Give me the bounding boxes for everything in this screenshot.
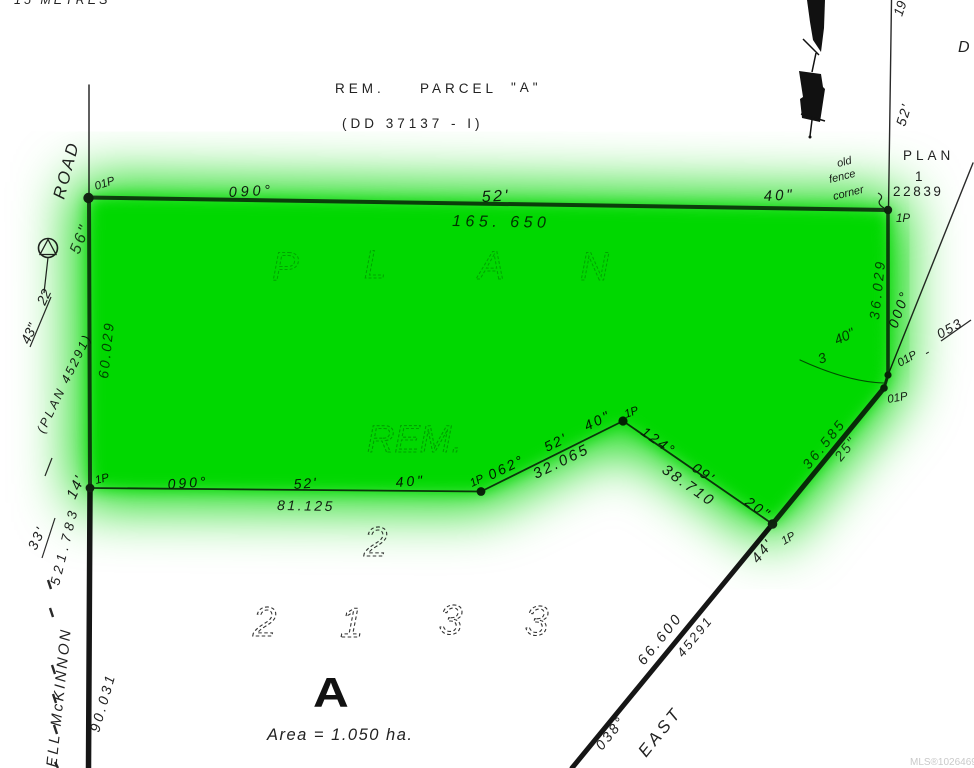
svg-text:PLAN: PLAN (903, 148, 954, 163)
svg-text:053: 053 (934, 315, 965, 341)
svg-text:43": 43" (17, 320, 41, 346)
svg-text:81.125: 81.125 (277, 497, 335, 514)
svg-text:1P: 1P (94, 472, 111, 487)
svg-text:038°: 038° (592, 713, 629, 753)
svg-text:1: 1 (915, 169, 923, 184)
svg-text:corner: corner (832, 183, 866, 203)
svg-text:-: - (921, 344, 933, 360)
svg-text:3: 3 (439, 596, 462, 643)
svg-text:1P: 1P (623, 405, 641, 421)
svg-text:BELL McKINNON: BELL McKINNON (42, 627, 75, 768)
svg-text:22: 22 (33, 286, 55, 308)
svg-text:01P: 01P (896, 349, 920, 370)
svg-text:090°: 090° (228, 183, 274, 201)
svg-text:165. 650: 165. 650 (452, 213, 551, 232)
svg-text:15 METRES: 15 METRES (14, 0, 110, 7)
svg-text:40": 40" (395, 472, 426, 490)
svg-text:521.783: 521.783 (47, 505, 81, 587)
svg-text:01P: 01P (93, 175, 116, 193)
svg-text:60.029: 60.029 (95, 320, 117, 379)
svg-text:52': 52' (293, 474, 318, 492)
svg-text:3: 3 (525, 597, 548, 644)
svg-text:2: 2 (252, 598, 276, 645)
svg-text:01P: 01P (886, 391, 909, 406)
svg-text:44': 44' (749, 536, 778, 567)
svg-text:ROAD: ROAD (50, 139, 84, 201)
svg-text:A: A (313, 669, 349, 717)
svg-text:P: P (272, 245, 299, 289)
svg-text:40": 40" (581, 407, 613, 434)
svg-text:3: 3 (816, 349, 829, 367)
svg-text:Area = 1.050 ha.: Area = 1.050 ha. (266, 726, 413, 744)
svg-text:40": 40" (832, 324, 858, 348)
svg-text:19: 19 (891, 0, 910, 18)
svg-text:14': 14' (63, 473, 89, 502)
svg-text:1P: 1P (468, 473, 486, 490)
svg-text:1P: 1P (780, 530, 798, 548)
svg-text:1: 1 (340, 599, 363, 646)
svg-text:MLS®1026469: MLS®1026469 (910, 757, 974, 768)
svg-text:1P: 1P (896, 213, 910, 225)
svg-text:22839: 22839 (893, 184, 944, 199)
svg-text:EAST: EAST (634, 703, 686, 760)
svg-text:REM.: REM. (367, 419, 462, 461)
svg-text:(PLAN 45291): (PLAN 45291) (34, 331, 94, 435)
svg-text:36.029: 36.029 (866, 258, 888, 320)
svg-text:"A": "A" (511, 80, 542, 95)
svg-text:L: L (364, 243, 386, 287)
svg-text:2: 2 (363, 518, 387, 565)
svg-text:52': 52' (481, 188, 510, 206)
svg-text:REM.: REM. (335, 81, 385, 96)
svg-text:20": 20" (741, 493, 774, 523)
svg-text:D: D (958, 39, 970, 56)
svg-text:(DD 37137 - I): (DD 37137 - I) (342, 116, 484, 131)
svg-text:N: N (580, 245, 609, 289)
svg-text:fence: fence (828, 168, 857, 186)
svg-text:A: A (476, 244, 505, 288)
svg-text:PARCEL: PARCEL (420, 81, 497, 96)
svg-text:090°: 090° (167, 473, 209, 492)
svg-text:124°: 124° (638, 423, 679, 458)
svg-text:52': 52' (893, 101, 915, 127)
svg-text:40": 40" (763, 186, 795, 205)
